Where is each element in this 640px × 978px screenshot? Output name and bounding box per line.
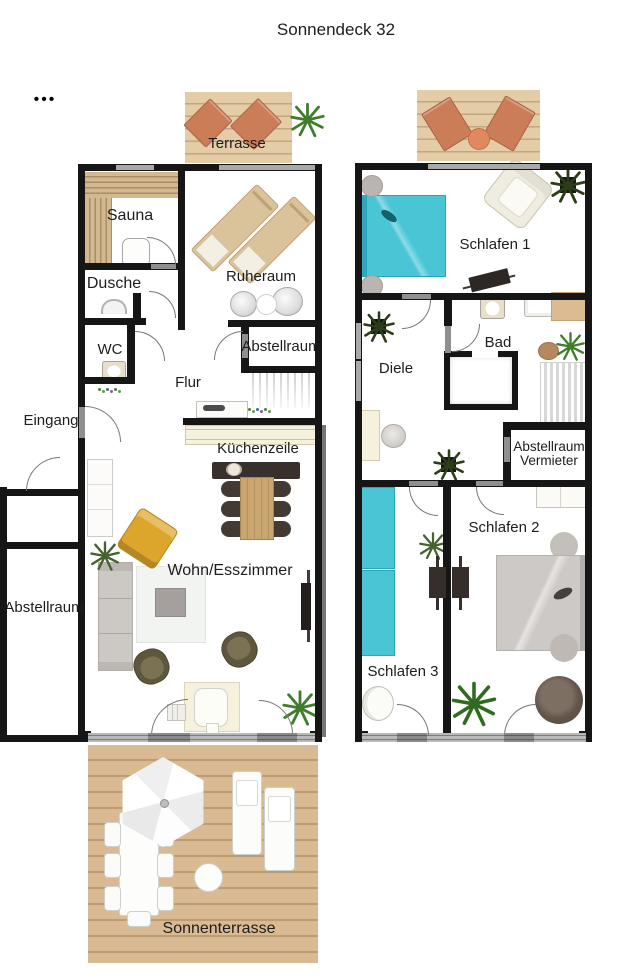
stairs [252, 373, 315, 408]
room-label-diele: Diele [379, 360, 413, 377]
wall [355, 163, 362, 742]
wall [315, 164, 322, 742]
outdoor-chair [104, 853, 121, 878]
round-rug [550, 634, 578, 662]
wall [443, 480, 451, 742]
wall [503, 422, 592, 430]
door-leaf [504, 437, 510, 462]
room-label-terrasse: Terrasse [208, 135, 266, 152]
room-label-ruheraum: Ruheraum [226, 268, 296, 285]
potted-plant-icon [362, 310, 396, 344]
wall [178, 164, 185, 330]
room-label-abstellraum-flur: Abstellraum [241, 338, 320, 355]
terrace-door [148, 733, 190, 742]
dining-table [240, 477, 274, 540]
dining-chair [221, 501, 241, 517]
potted-plant-icon [450, 680, 498, 728]
room-label-abstellraum-links: Abstellraum [4, 599, 83, 616]
desk-chair [381, 424, 406, 448]
room-label-abstellraum-vermieter-2: Vermieter [520, 454, 578, 469]
room-label-bad: Bad [485, 334, 512, 351]
stairs [540, 362, 588, 426]
door-swing [147, 237, 176, 265]
chair [230, 291, 257, 317]
window [356, 323, 361, 359]
room-label-schlafen3: Schlafen 3 [368, 663, 439, 680]
door-swing [135, 331, 165, 361]
potted-plant-icon [289, 100, 326, 140]
balcony-door [397, 733, 427, 742]
sliding-door [219, 165, 315, 170]
outdoor-side-table [194, 863, 223, 892]
wall [133, 293, 141, 318]
room-label-sauna: Sauna [107, 207, 153, 225]
armchair-olive [128, 643, 175, 690]
room-label-wc: WC [98, 341, 123, 358]
potted-plant-icon [555, 331, 586, 362]
wall-desk [429, 567, 446, 598]
room-label-flur: Flur [175, 374, 201, 391]
floor-plan-canvas: Sonnendeck 32 ••• Terrasse Sauna Dusche … [0, 0, 640, 978]
flowers-icon [248, 408, 251, 411]
door-swing [476, 487, 504, 515]
shower-cabin [444, 351, 518, 410]
wall [355, 480, 592, 487]
wall [228, 320, 322, 327]
armchair-olive [216, 626, 264, 674]
door-swing [504, 704, 536, 736]
door-leaf [476, 481, 503, 486]
dining-chair [271, 501, 291, 517]
wall-desk [452, 567, 469, 598]
potted-plant-icon [549, 167, 587, 205]
wall [585, 163, 592, 742]
room-label-sonnenterrasse: Sonnenterrasse [163, 920, 276, 938]
side-table [256, 294, 277, 315]
pouf [535, 676, 583, 724]
wall [241, 366, 322, 373]
single-bed-teal [360, 487, 395, 569]
armchair-yellow [116, 507, 179, 571]
desk-leg [459, 598, 462, 610]
door-swing [214, 331, 243, 360]
door-leaf [402, 294, 431, 299]
sauna-bench [85, 172, 178, 198]
balcony-door [504, 733, 534, 742]
wall [183, 418, 322, 425]
sauna-bucket [122, 238, 150, 265]
room-label-dusche: Dusche [87, 275, 141, 293]
wall [127, 325, 135, 377]
dining-chair [271, 481, 291, 497]
flowers-icon [98, 388, 101, 391]
potted-plant-icon [432, 448, 466, 482]
wall [78, 164, 85, 742]
sun-lounger [264, 787, 295, 871]
coffee-table [155, 588, 186, 617]
wall [444, 300, 452, 326]
terrace-door [257, 733, 297, 742]
exterior-rail [322, 425, 326, 737]
room-label-schlafen2: Schlafen 2 [469, 519, 540, 536]
window [356, 361, 361, 401]
shelf-item [203, 405, 225, 411]
wall [78, 318, 146, 325]
desk-leg [459, 556, 462, 567]
dining-chair [221, 521, 241, 537]
window [116, 165, 154, 170]
room-label-kuechenzeile: Küchenzeile [217, 440, 299, 457]
door-swing [409, 487, 438, 516]
room-label-wohn-esszimmer: Wohn/Esszimmer [167, 562, 292, 580]
shower-icon [101, 299, 127, 314]
outdoor-chair [157, 886, 174, 911]
sun-lounger [232, 771, 262, 855]
tv [301, 583, 311, 630]
page-title: Sonnendeck 32 [277, 20, 395, 40]
balcony-table [468, 128, 490, 150]
tv [468, 268, 510, 292]
door-leaf [409, 481, 438, 486]
door-swing [26, 457, 60, 491]
wardrobe [536, 485, 587, 508]
outdoor-chair [157, 853, 174, 878]
desk-leg [436, 598, 439, 610]
plate [226, 463, 242, 476]
door-leaf [445, 326, 451, 353]
wall [0, 735, 86, 742]
wall [78, 377, 135, 384]
door-swing [402, 300, 431, 329]
room-label-schlafen1: Schlafen 1 [460, 236, 531, 253]
more-options-button[interactable]: ••• [34, 91, 57, 109]
chair-white [362, 686, 394, 721]
door-swing [85, 406, 121, 442]
door-swing [151, 699, 188, 736]
wardrobe [87, 459, 113, 537]
sliding-door [428, 164, 540, 169]
wall [355, 293, 592, 300]
door-swing [149, 291, 176, 318]
sofa [98, 562, 133, 671]
dining-chair [221, 481, 241, 497]
stove [194, 688, 228, 727]
dining-chair [271, 521, 291, 537]
outdoor-chair [104, 822, 121, 847]
potted-plant-icon [89, 538, 121, 574]
outdoor-chair [104, 886, 121, 911]
door-swing [452, 324, 480, 352]
door-swing [397, 704, 429, 736]
wall [0, 542, 82, 549]
outdoor-chair [127, 911, 151, 927]
nightstand [361, 175, 383, 197]
single-bed-teal [360, 570, 395, 656]
desk-leg [436, 556, 439, 567]
double-bed-teal [360, 195, 446, 277]
room-label-eingang: Eingang [23, 412, 78, 429]
window-wall [362, 733, 586, 742]
